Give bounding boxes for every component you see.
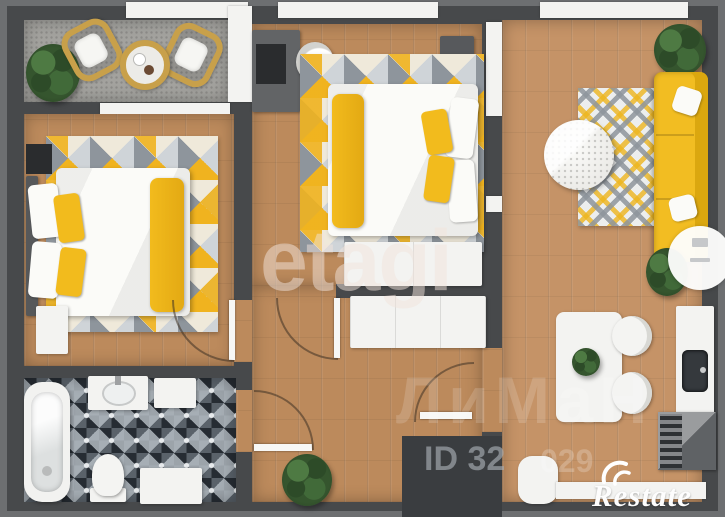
bedroom2-tv-panel — [256, 44, 286, 84]
hallway-closet — [350, 296, 486, 348]
chair-cushion — [172, 35, 210, 74]
chair-cushion — [72, 31, 111, 71]
bathtub-basin — [31, 392, 63, 492]
badge-mark — [690, 258, 710, 262]
window-living-top — [540, 2, 688, 18]
kitchen-sink — [682, 350, 708, 392]
living-plant-top — [654, 24, 706, 76]
window-balcony-bedroom1 — [100, 103, 230, 114]
doorway-bedroom1 — [234, 300, 252, 362]
restate-logo: Restate — [590, 460, 725, 516]
bedroom1-nightstand-white — [36, 306, 68, 354]
living-pouf — [518, 456, 558, 504]
entry-vestibule — [402, 436, 502, 517]
white-circle-badge — [668, 226, 725, 290]
sofa-seam — [656, 134, 694, 136]
restate-logo-text: Restate — [592, 478, 692, 514]
faucet — [700, 367, 706, 373]
bathroom-vanity — [88, 376, 148, 410]
white-wall-balcony-right — [228, 6, 252, 102]
washing-machine — [140, 468, 202, 504]
bedroom1-throw-blanket — [150, 178, 184, 312]
floor-plan-image: etagi ЛиМаН ID 32 029 Restate — [0, 0, 725, 517]
window-bedroom2-top — [278, 2, 438, 18]
vanity-tap — [115, 376, 121, 385]
cup — [133, 53, 146, 66]
white-partition-living-2 — [486, 196, 502, 212]
dining-chair — [612, 316, 652, 356]
doorway-living — [482, 348, 502, 432]
bathtub — [24, 382, 70, 502]
bathtub-drain — [42, 466, 52, 476]
doorway-bathroom — [236, 390, 252, 452]
coffee-table — [544, 120, 614, 190]
hallway-plant — [282, 454, 332, 506]
bedroom1-nightstand-dark — [26, 144, 52, 174]
bathroom-cabinet — [154, 378, 196, 408]
toilet-bowl — [92, 454, 124, 496]
bedroom2-dresser — [344, 242, 482, 286]
dining-chair — [612, 372, 652, 414]
bedroom2-throw-blanket — [332, 94, 364, 228]
white-partition-living — [486, 22, 502, 116]
cup-dark — [144, 65, 154, 75]
badge-mark — [692, 238, 708, 247]
balcony-table — [120, 40, 170, 90]
dining-table-plant — [572, 348, 600, 376]
